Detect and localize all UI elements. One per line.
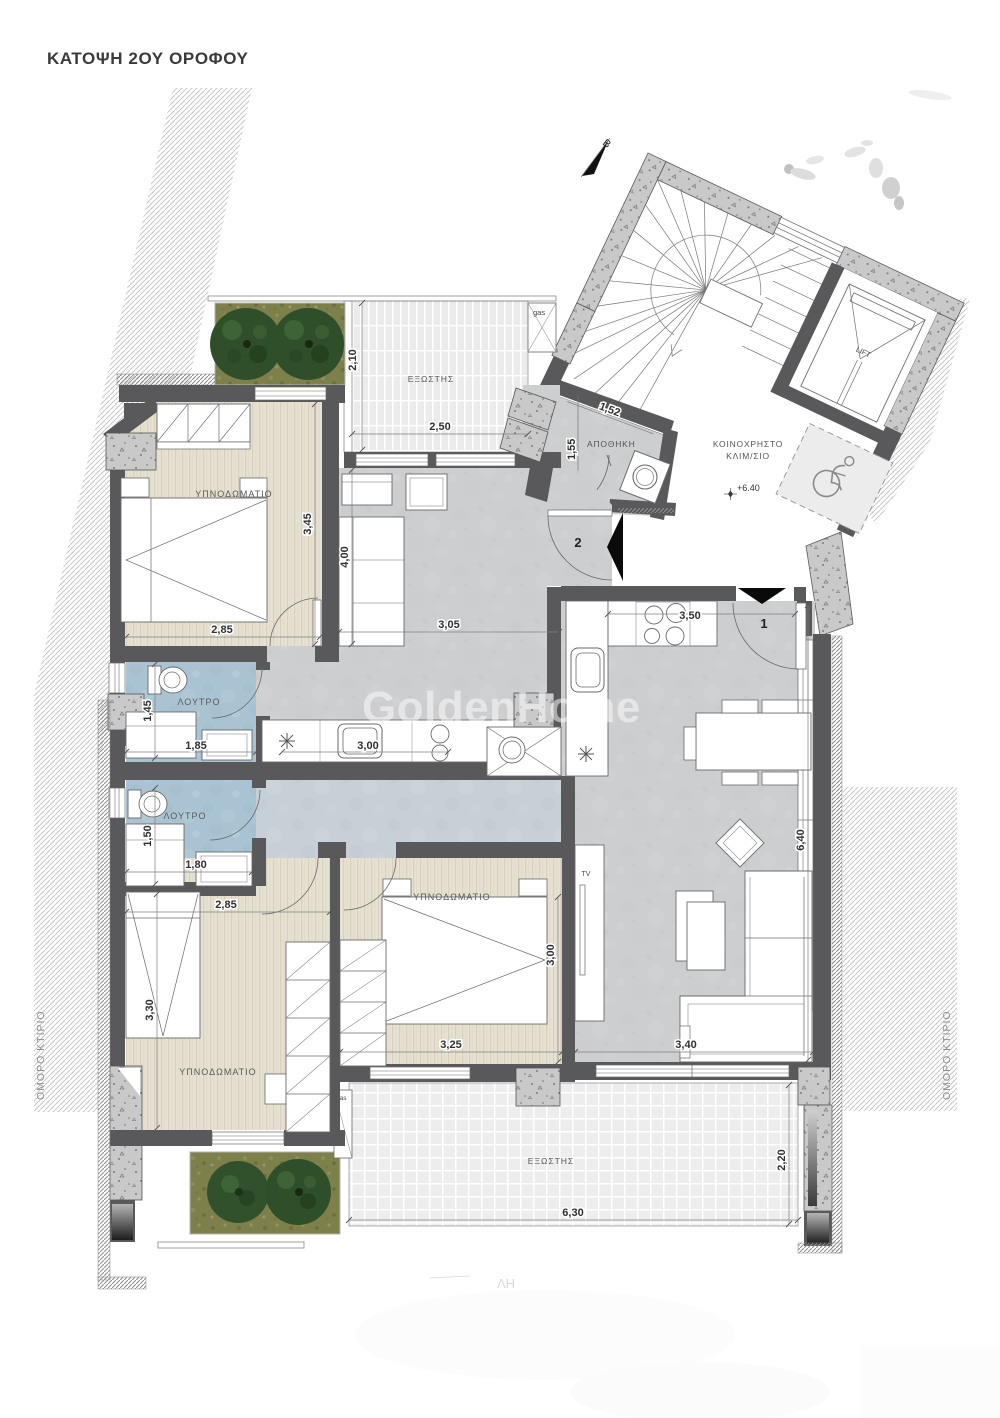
svg-text:ΚΛΙΜ/ΣΙΟ: ΚΛΙΜ/ΣΙΟ (726, 451, 770, 461)
svg-text:2,85: 2,85 (211, 624, 232, 636)
svg-text:1,55: 1,55 (566, 439, 578, 460)
svg-text:3,25: 3,25 (440, 1039, 461, 1051)
svg-text:gas: gas (533, 308, 545, 317)
svg-text:ΛΗ: ΛΗ (497, 1276, 515, 1291)
svg-text:ΟΜΟΡΟ ΚΤΙΡΙΟ: ΟΜΟΡΟ ΚΤΙΡΙΟ (941, 1010, 953, 1100)
svg-text:ΛΟΥΤΡΟ: ΛΟΥΤΡΟ (163, 811, 206, 821)
svg-text:3,00: 3,00 (545, 944, 557, 965)
svg-text:ΟΜΟΡΟ ΚΤΙΡΙΟ: ΟΜΟΡΟ ΚΤΙΡΙΟ (35, 1010, 47, 1100)
svg-text:ΕΞΩΣΤΗΣ: ΕΞΩΣΤΗΣ (408, 374, 454, 384)
svg-text:3,40: 3,40 (675, 1039, 696, 1051)
svg-text:6,30: 6,30 (562, 1207, 583, 1219)
svg-text:ΚΑΤΟΨΗ 2ΟΥ ΟΡΟΦΟΥ: ΚΑΤΟΨΗ 2ΟΥ ΟΡΟΦΟΥ (47, 49, 249, 68)
svg-text:1,85: 1,85 (185, 740, 206, 752)
svg-text:6,40: 6,40 (795, 829, 807, 850)
svg-text:TV: TV (582, 871, 591, 878)
svg-text:ΕΞΩΣΤΗΣ: ΕΞΩΣΤΗΣ (528, 1156, 574, 1166)
svg-text:2,85: 2,85 (215, 899, 236, 911)
svg-text:2,20: 2,20 (776, 1149, 788, 1170)
svg-text:1: 1 (760, 616, 767, 631)
svg-text:GoldenHome: GoldenHome (362, 683, 641, 732)
svg-text:ΚΟΙΝΟΧΡΗΣΤΟ: ΚΟΙΝΟΧΡΗΣΤΟ (713, 439, 783, 449)
svg-text:2: 2 (574, 535, 581, 550)
svg-text:+6.40: +6.40 (737, 483, 760, 493)
svg-text:ΛΟΥΤΡΟ: ΛΟΥΤΡΟ (177, 697, 220, 707)
svg-text:ΥΠΝΟΔΩΜΑΤΙΟ: ΥΠΝΟΔΩΜΑΤΙΟ (413, 892, 490, 902)
svg-text:3,00: 3,00 (357, 740, 378, 752)
svg-text:2,50: 2,50 (429, 421, 450, 433)
svg-text:3,05: 3,05 (438, 619, 459, 631)
svg-text:ΥΠΝΟΔΩΜΑΤΙΟ: ΥΠΝΟΔΩΜΑΤΙΟ (195, 489, 272, 499)
svg-text:3,50: 3,50 (679, 610, 700, 622)
svg-text:1,45: 1,45 (142, 700, 154, 721)
svg-text:ΥΠΝΟΔΩΜΑΤΙΟ: ΥΠΝΟΔΩΜΑΤΙΟ (179, 1067, 256, 1077)
svg-text:3,45: 3,45 (302, 513, 314, 534)
svg-text:1,50: 1,50 (142, 825, 154, 846)
svg-text:4,00: 4,00 (339, 546, 351, 567)
svg-text:ΑΠΟΘΗΚΗ: ΑΠΟΘΗΚΗ (587, 439, 636, 449)
svg-text:2,10: 2,10 (347, 349, 359, 370)
svg-text:1,80: 1,80 (185, 859, 206, 871)
svg-text:3,30: 3,30 (144, 999, 156, 1020)
